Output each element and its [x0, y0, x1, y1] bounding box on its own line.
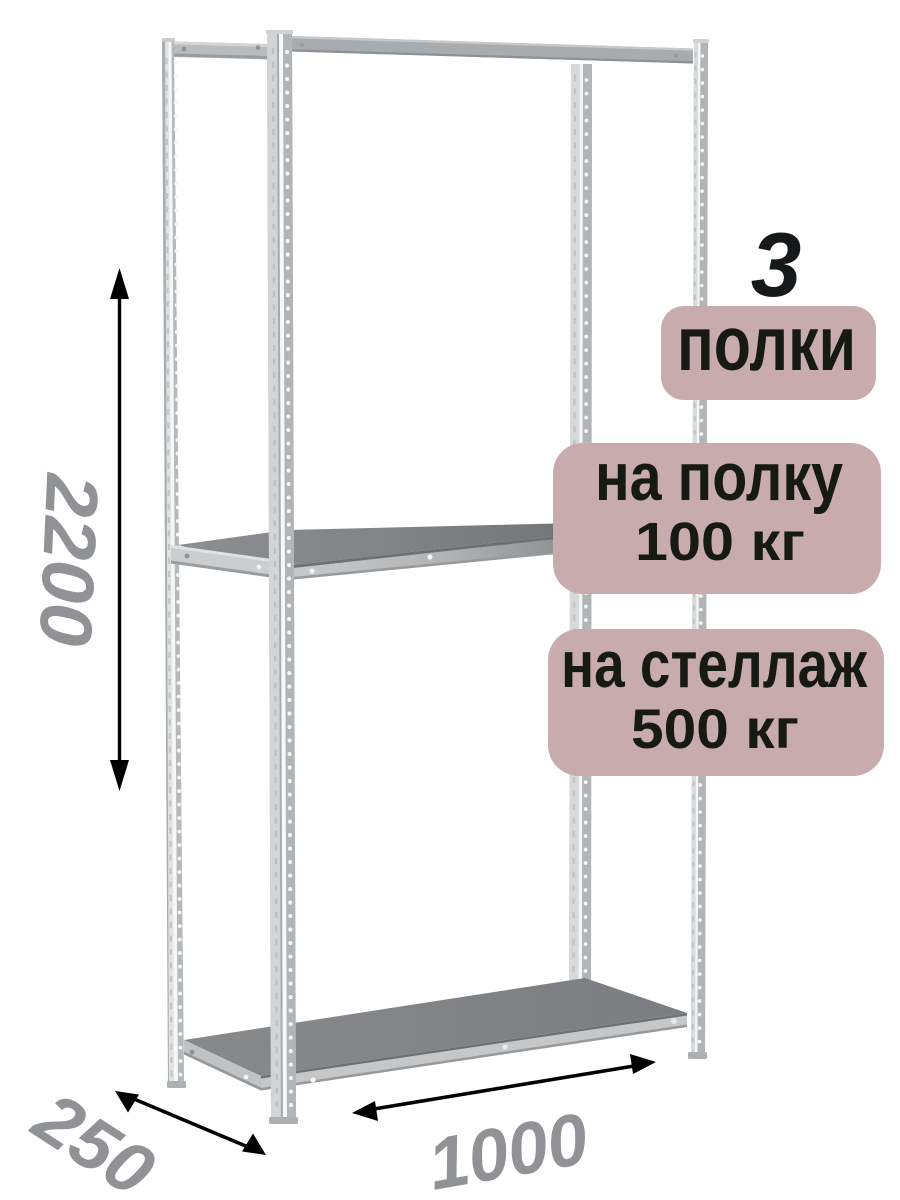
svg-text:полки: полки [677, 301, 856, 387]
svg-text:100 кг: 100 кг [635, 512, 805, 572]
svg-text:500 кг: 500 кг [631, 697, 799, 760]
svg-text:на стеллаж: на стеллаж [561, 627, 868, 701]
svg-text:2200: 2200 [24, 470, 115, 648]
svg-text:на полку: на полку [595, 439, 843, 515]
